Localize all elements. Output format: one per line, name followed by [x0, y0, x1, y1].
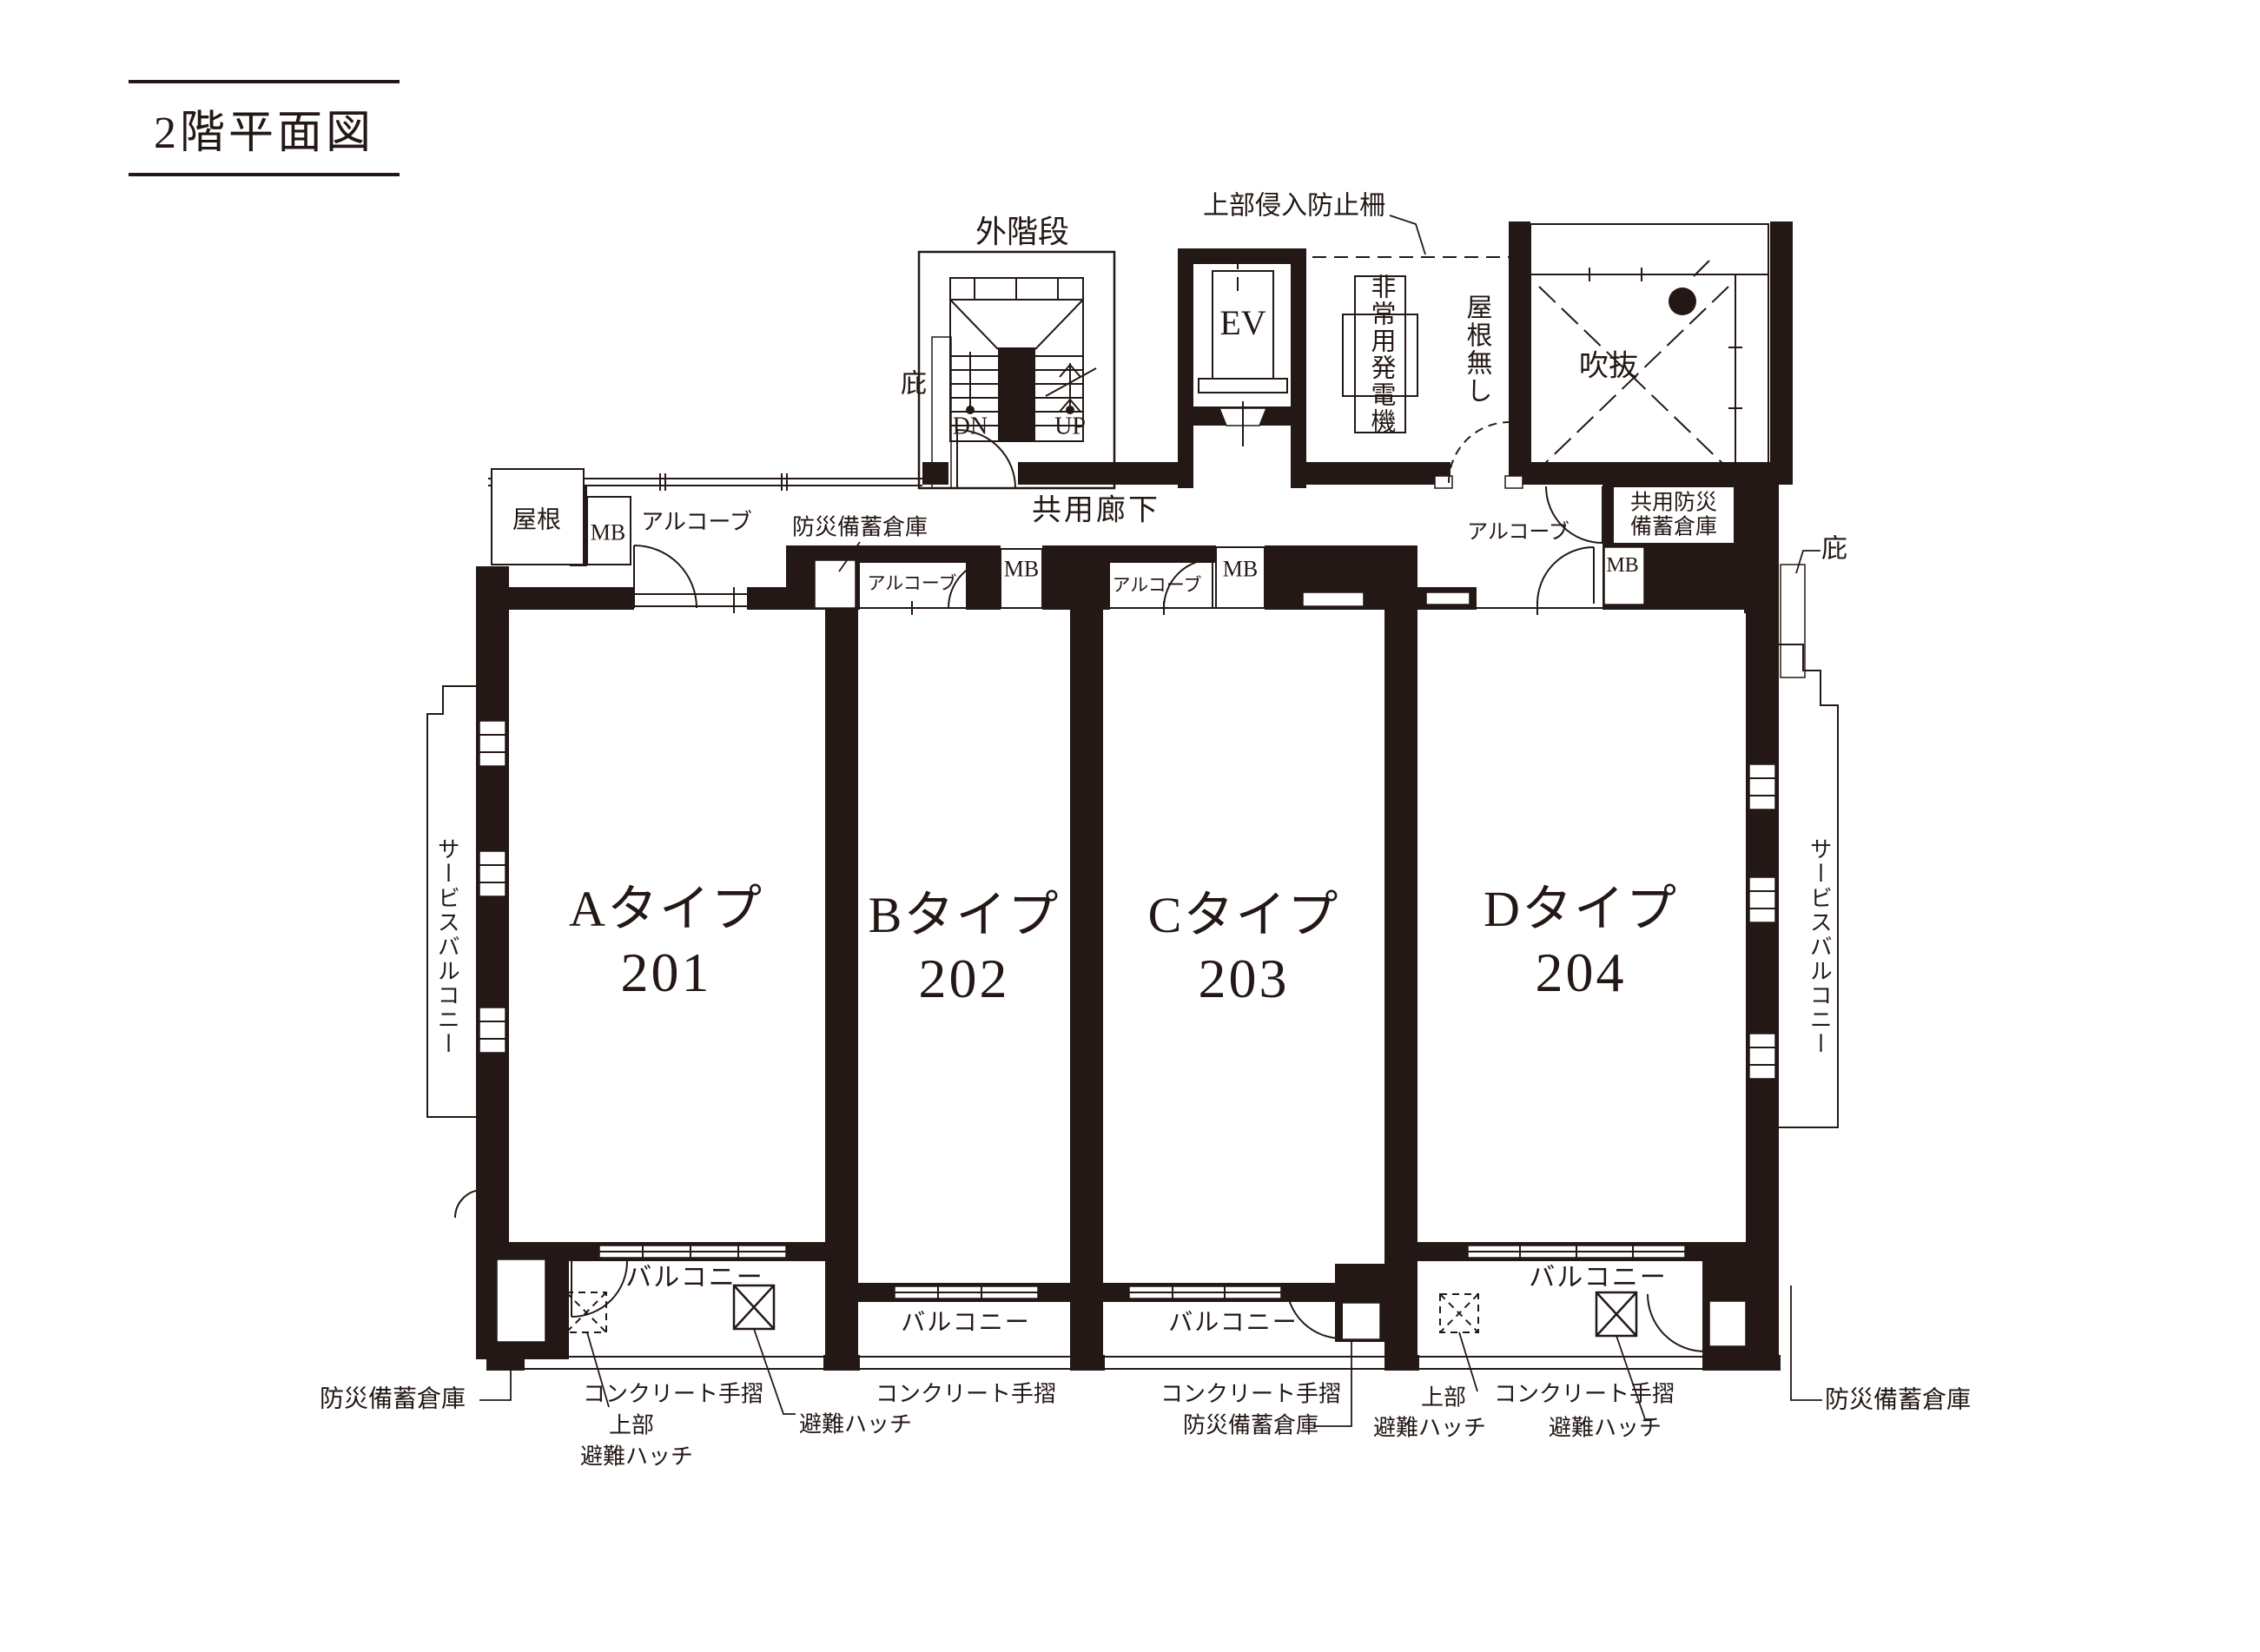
storage-room-corridor [815, 560, 856, 608]
mb-label-b: MB [1004, 558, 1039, 583]
service-balcony-label-left: サービスバルコニー [434, 837, 459, 1056]
floor-plan-canvas: 2階平面図 外階段 庇 DN UP 上部侵入防止柵 EV 非常用発電機 屋根無し… [0, 0, 2260, 1652]
atrium-label: 吹抜 [1579, 350, 1638, 382]
balcony-label-a: バルコニー [625, 1264, 763, 1292]
mb-label-left: MB [591, 521, 625, 546]
alcove-label-c: アルコーブ [1112, 575, 1201, 595]
service-balcony-label-right: サービスバルコニー [1807, 837, 1832, 1056]
canopy-right-outline [1781, 565, 1805, 677]
unit-d-label: Dタイプ 204 [1484, 868, 1678, 1005]
upper-hatch-label-d: 避難ハッチ [1373, 1417, 1486, 1442]
unit-c-label: Cタイプ 203 [1148, 874, 1340, 1011]
generator-label: 非常用発電機 [1366, 274, 1394, 435]
upper-label-d: 上部 [1421, 1386, 1466, 1411]
balcony-label-b: バルコニー [901, 1311, 1030, 1338]
service-balconies [427, 565, 1838, 1127]
canopy-label-stairs: 庇 [901, 370, 927, 399]
canopy-label-right: 庇 [1821, 535, 1847, 564]
storage-label-bottom-right: 防災備蓄倉庫 [1825, 1388, 1971, 1415]
stairs-up-label: UP [1054, 414, 1086, 441]
intrusion-fence-label: 上部侵入防止柵 [1203, 192, 1385, 221]
alcove-label-a: アルコーブ [641, 511, 752, 536]
alcove-label-d: アルコーブ [1467, 521, 1569, 544]
balcony-label-c: バルコニー [1168, 1311, 1298, 1338]
handrail-label-c: コンクリート手摺 [1160, 1383, 1341, 1408]
atrium-void [1530, 224, 1768, 483]
handrail-label-b: コンクリート手摺 [876, 1383, 1056, 1408]
handrail-label-d: コンクリート手摺 [1494, 1383, 1675, 1408]
storage-label-bottom-c: 防災備蓄倉庫 [1183, 1414, 1318, 1439]
storage-room-bottom-left [497, 1259, 545, 1342]
roof-label: 屋根 [512, 508, 561, 535]
outer-stairs-label: 外階段 [975, 215, 1069, 250]
stairs-dn-label: DN [953, 414, 988, 441]
elevator-label: EV [1219, 304, 1265, 342]
corridor-label: 共用廊下 [1032, 494, 1160, 526]
atrium-door-dashed [1449, 422, 1510, 483]
alcove-label-b: アルコーブ [867, 573, 956, 593]
upper-label-a: 上部 [609, 1414, 654, 1439]
storage-label-bottom-left: 防災備蓄倉庫 [320, 1387, 466, 1414]
handrail-label-a: コンクリート手摺 [583, 1383, 763, 1408]
no-roof-label: 屋根無し [1463, 294, 1491, 405]
title-text: 2階平面図 [129, 96, 400, 161]
hatch-label-d: 避難ハッチ [1549, 1417, 1662, 1442]
storage-label-corridor: 防災備蓄倉庫 [792, 516, 928, 541]
mb-label-d: MB [1606, 554, 1638, 577]
page-title: 2階平面図 [129, 80, 400, 176]
upper-hatch-label-a: 避難ハッチ [580, 1445, 693, 1470]
shared-storage-label: 共用防災 備蓄倉庫 [1630, 492, 1717, 539]
balcony-label-d: バルコニー [1529, 1264, 1667, 1292]
mb-label-c: MB [1223, 558, 1258, 583]
storage-room-bottom-c [1342, 1303, 1380, 1339]
walls [476, 221, 1793, 1371]
hatch-label-ab: 避難ハッチ [799, 1413, 912, 1438]
atrium-drain-dot [1669, 287, 1696, 315]
unit-a-label: Aタイプ 201 [569, 868, 763, 1005]
unit-b-label: Bタイプ 202 [869, 874, 1061, 1011]
storage-room-bottom-right [1709, 1301, 1746, 1346]
